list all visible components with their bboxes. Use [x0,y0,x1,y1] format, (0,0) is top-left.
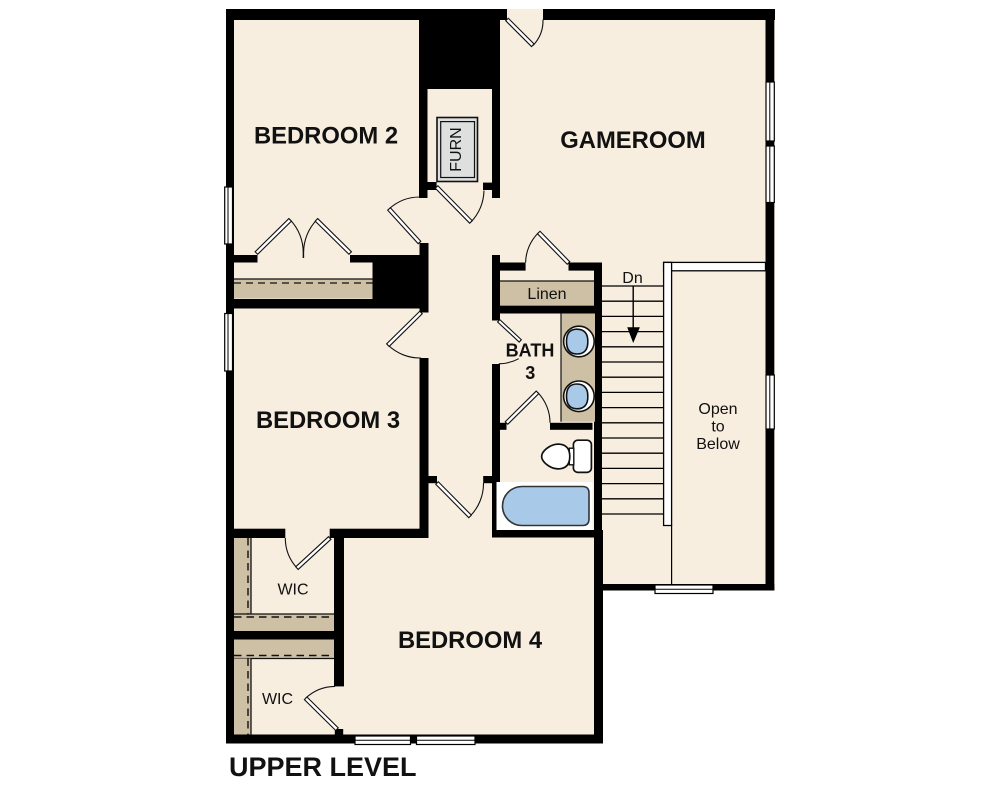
svg-text:GAMEROOM: GAMEROOM [560,127,705,154]
svg-text:3: 3 [525,363,535,383]
svg-text:Open: Open [698,401,737,418]
svg-text:BEDROOM 4: BEDROOM 4 [398,627,543,654]
svg-text:Below: Below [696,436,740,453]
svg-text:Linen: Linen [527,286,566,303]
svg-text:BEDROOM 3: BEDROOM 3 [256,407,400,434]
svg-text:FURN: FURN [448,127,465,171]
svg-text:UPPER LEVEL: UPPER LEVEL [229,752,417,782]
svg-text:Dn: Dn [622,270,642,287]
svg-text:BATH: BATH [506,341,555,361]
svg-text:WIC: WIC [262,691,293,708]
svg-text:WIC: WIC [277,581,308,598]
svg-text:to: to [711,419,724,436]
svg-text:BEDROOM 2: BEDROOM 2 [254,123,398,150]
